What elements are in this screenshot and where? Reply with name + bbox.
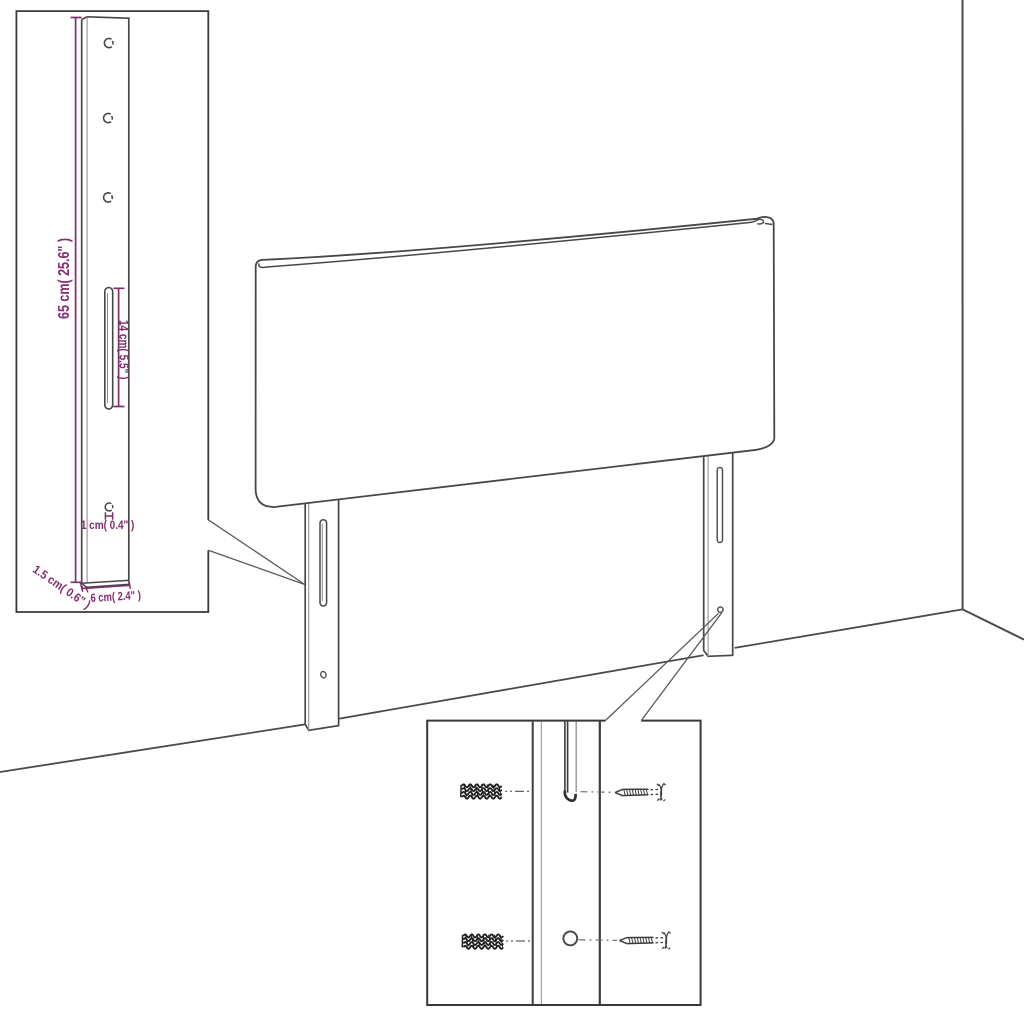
svg-text:1 cm( 0.4" ): 1 cm( 0.4" ) — [81, 518, 135, 532]
svg-text:65 cm( 25.6" ): 65 cm( 25.6" ) — [56, 238, 73, 319]
svg-text:14 cm( 5.5" ): 14 cm( 5.5" ) — [117, 320, 131, 380]
